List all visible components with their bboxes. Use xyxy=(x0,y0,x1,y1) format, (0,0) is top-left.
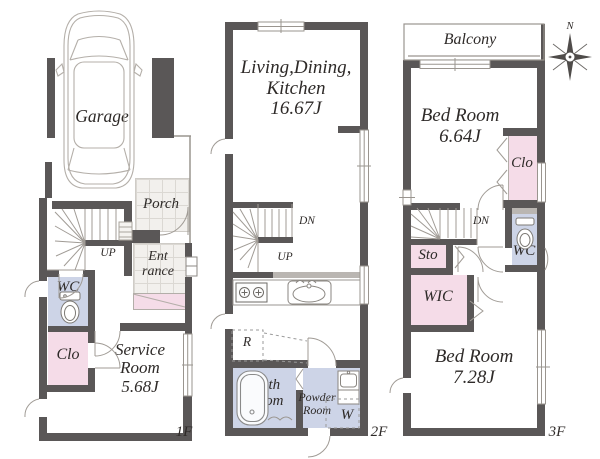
wall-segment xyxy=(403,428,545,436)
decor xyxy=(307,284,311,288)
decor xyxy=(264,333,307,363)
wall-segment xyxy=(360,22,368,130)
decor xyxy=(288,281,331,304)
ldk-label: Living,Dining, Kitchen 16.67J xyxy=(231,58,361,120)
decor xyxy=(569,56,572,59)
stove-icon xyxy=(236,283,267,302)
wall-segment xyxy=(403,268,453,275)
decor xyxy=(478,277,503,302)
wall-segment xyxy=(88,323,95,331)
wall-segment xyxy=(403,325,474,332)
wall-segment xyxy=(47,270,59,277)
decor xyxy=(565,52,575,62)
wall-segment xyxy=(467,275,474,330)
decor xyxy=(308,360,336,368)
wall-segment xyxy=(225,428,368,436)
closet-3f xyxy=(508,136,538,200)
up-label-2f: UP xyxy=(270,251,300,263)
decor xyxy=(242,290,262,296)
entrance-step xyxy=(133,293,187,310)
wall-segment xyxy=(360,202,368,266)
wc-room-3f xyxy=(512,214,537,265)
decor xyxy=(390,378,403,393)
floor-label-3f: 3F xyxy=(542,424,572,440)
wall-segment xyxy=(228,272,273,278)
wall-segment xyxy=(225,22,233,436)
decor xyxy=(357,130,371,202)
decor xyxy=(47,209,85,270)
wall-segment xyxy=(152,58,174,138)
wall-segment xyxy=(48,326,88,332)
wall-segment xyxy=(45,162,52,198)
front-door-leaf xyxy=(186,257,197,276)
decor xyxy=(458,247,483,272)
floorplan-canvas: Garage Porch UP Ent rance WC Clo Service… xyxy=(0,0,600,459)
wall-segment xyxy=(228,202,293,208)
decor xyxy=(545,248,548,270)
decor xyxy=(25,281,39,417)
wall-segment xyxy=(541,24,545,60)
wall-segment xyxy=(403,239,477,245)
refrigerator-space xyxy=(232,330,307,363)
bath-room xyxy=(233,368,296,428)
compass-north-label: N xyxy=(563,21,577,32)
decor xyxy=(296,369,303,389)
wall-segment xyxy=(52,201,132,209)
wall-segment xyxy=(360,304,368,436)
decor xyxy=(448,208,471,238)
kitchen-counter xyxy=(233,280,360,305)
decor xyxy=(411,208,440,239)
decor xyxy=(74,62,124,148)
wall-segment xyxy=(185,277,192,334)
decor xyxy=(240,288,250,298)
decor xyxy=(455,246,464,268)
decor xyxy=(233,280,360,305)
decor xyxy=(186,257,197,276)
decor xyxy=(233,209,258,272)
wall-segment xyxy=(185,243,192,257)
wall-segment xyxy=(336,360,368,368)
decor xyxy=(548,33,592,81)
wall-segment xyxy=(124,201,132,276)
decor xyxy=(497,138,507,194)
bed-room-2-label: Bed Room 7.28J xyxy=(412,347,536,388)
wall-segment xyxy=(183,396,192,433)
compass-icon xyxy=(548,33,592,81)
decor xyxy=(184,334,193,396)
decor xyxy=(273,272,360,278)
wall-segment xyxy=(403,60,545,68)
storage-3f xyxy=(411,245,446,268)
wall-segment xyxy=(47,58,55,138)
closet-1f xyxy=(48,332,88,385)
garage-label: Garage xyxy=(66,107,138,126)
wall-segment xyxy=(503,128,545,136)
floor-label-2f: 2F xyxy=(364,424,394,440)
wall-segment xyxy=(225,22,368,30)
decor xyxy=(478,185,503,210)
wall-segment xyxy=(403,203,460,210)
wall-segment xyxy=(132,230,160,243)
decor xyxy=(236,283,267,302)
wall-segment xyxy=(258,237,293,243)
car-icon xyxy=(56,11,142,188)
decor xyxy=(182,334,193,396)
wc-room-1f xyxy=(48,277,88,326)
dn-label-2f: DN xyxy=(292,215,322,227)
decor xyxy=(404,24,544,60)
wall-segment xyxy=(338,126,360,133)
decor xyxy=(478,247,503,272)
decor xyxy=(360,266,369,304)
decor xyxy=(70,37,128,61)
decor xyxy=(68,148,130,174)
refrigerator-label: R xyxy=(235,335,259,350)
decor xyxy=(308,436,330,457)
wall-segment xyxy=(503,200,545,208)
bed-room-1-label: Bed Room 6.64J xyxy=(406,106,514,147)
decor xyxy=(95,331,120,356)
up-label-1f: UP xyxy=(90,247,126,259)
decor xyxy=(553,44,587,70)
decor xyxy=(211,139,225,329)
decor xyxy=(293,286,325,302)
wall-segment xyxy=(225,360,308,368)
balcony-label: Balcony xyxy=(418,31,522,48)
decor xyxy=(55,209,85,270)
decor xyxy=(64,11,134,188)
decor xyxy=(232,330,263,361)
entrance-tile xyxy=(133,243,187,295)
balcony-outline xyxy=(404,24,544,60)
windows-2f xyxy=(225,19,371,329)
wall-segment xyxy=(120,323,190,331)
decor xyxy=(258,204,292,237)
wall-segment xyxy=(537,60,545,436)
wic-3f xyxy=(411,275,467,325)
wall-segment xyxy=(39,433,192,441)
decor xyxy=(68,16,130,185)
wall-segment xyxy=(403,60,411,436)
wall-segment xyxy=(85,240,124,246)
service-room-label: Service Room 5.68J xyxy=(94,341,186,396)
wall-segment xyxy=(505,208,512,248)
decor xyxy=(296,281,316,284)
porch-tile xyxy=(135,178,190,232)
wall-segment xyxy=(505,265,545,272)
decor xyxy=(92,209,116,240)
dn-label-3f: DN xyxy=(466,215,496,227)
wall-segment xyxy=(39,385,95,392)
decor xyxy=(56,64,142,76)
sink-icon xyxy=(288,281,331,305)
decor xyxy=(308,338,336,366)
powder-room xyxy=(303,368,360,428)
decor xyxy=(265,209,286,237)
decor xyxy=(95,343,120,368)
decor xyxy=(254,288,264,298)
decor xyxy=(360,130,369,202)
wall-segment xyxy=(39,198,47,441)
wall-segment xyxy=(88,270,95,343)
wall-segment xyxy=(296,390,303,428)
wall-segment xyxy=(446,245,453,268)
